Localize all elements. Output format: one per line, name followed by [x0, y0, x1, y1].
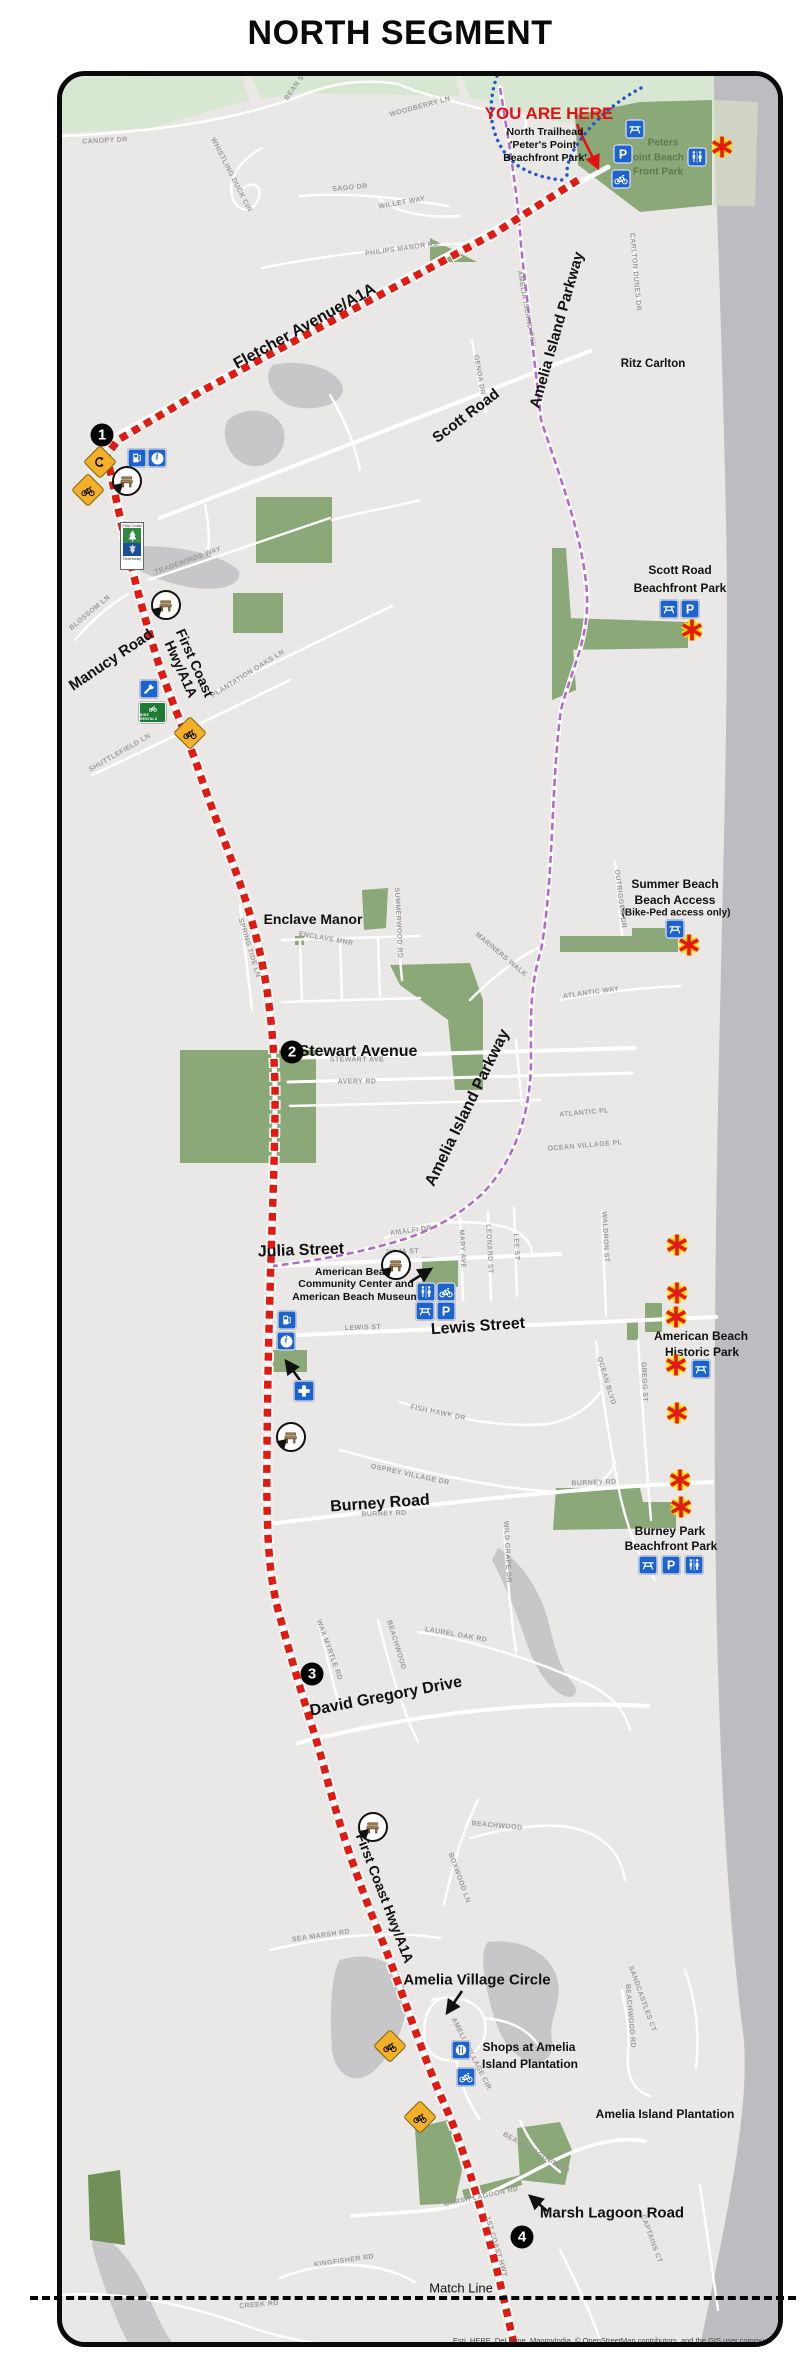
place-peters-point: Front Park — [633, 167, 683, 178]
place-shops: Shops at Amelia — [483, 2040, 576, 2054]
picnic-icon — [626, 120, 645, 139]
street-label: LEE ST — [512, 1233, 520, 1260]
place-scott-park: Scott Road — [648, 563, 711, 577]
info-icon: i — [148, 449, 167, 468]
map-attribution: Esri, HERE, DeLorme, MapmyIndia, © OpenS… — [453, 2336, 776, 2345]
picnic-icon — [639, 1556, 658, 1575]
info-letter: i — [280, 1335, 292, 1347]
info-icon: i — [277, 1332, 296, 1351]
beach-access-icon — [665, 1281, 689, 1305]
parking-icon: P — [437, 1302, 456, 1321]
waypoint-marker-1: 1 — [91, 424, 114, 447]
place-ritz-carlton: Ritz Carlton — [621, 358, 686, 370]
gas-icon — [278, 1311, 297, 1330]
picnic-icon — [660, 600, 679, 619]
beach-access-icon — [680, 618, 704, 642]
parking-letter: P — [667, 1558, 675, 1572]
first-aid-icon — [294, 1381, 315, 1402]
beach-access-icon — [710, 135, 734, 159]
street-label: LEWIS ST — [345, 1324, 381, 1332]
place-peters-point: Point Beach — [626, 153, 684, 164]
bike-rentals-sign-icon: BIKE RENTALS — [139, 702, 166, 723]
road-label-marsh-lagoon: Marsh Lagoon Road — [540, 2205, 684, 2222]
greenway-sign-bottom-text: Greenway — [123, 556, 141, 561]
restroom-icon — [688, 148, 707, 167]
place-scott-park: Beachfront Park — [634, 581, 727, 595]
bike-icon — [612, 170, 631, 189]
picnic-icon — [666, 920, 685, 939]
map-base — [57, 71, 783, 2347]
road-label-julia: Julia Street — [258, 1241, 345, 1262]
place-am-beach-hp: American Beach — [654, 1329, 748, 1343]
place-summer-beach: Beach Access — [635, 893, 716, 907]
restroom-icon — [417, 1283, 436, 1302]
beach-access-icon — [664, 1353, 688, 1377]
place-shops: Island Plantation — [482, 2057, 578, 2071]
park-area-dark — [88, 2170, 125, 2245]
place-amelia-island-plantation: Amelia Island Plantation — [596, 2107, 735, 2121]
place-burney-park: Beachfront Park — [625, 1539, 718, 1553]
greenway-sign-icon: First Coast Greenway — [120, 522, 144, 570]
beach-access-icon — [669, 1495, 693, 1519]
beach-access-icon — [668, 1468, 692, 1492]
parking-icon: P — [662, 1556, 681, 1575]
waypoint-marker-4: 4 — [511, 2226, 534, 2249]
restroom-icon — [685, 1556, 704, 1575]
place-summer-beach: Summer Beach — [631, 877, 718, 891]
you-are-here-line: Beachfront Park' — [503, 152, 587, 164]
bench-icon — [381, 1250, 411, 1280]
info-letter: i — [151, 452, 163, 464]
page-title: NORTH SEGMENT — [0, 14, 800, 53]
parking-letter: P — [686, 602, 694, 616]
parking-letter: P — [619, 147, 627, 161]
gas-icon — [128, 449, 147, 468]
bike-repair-icon — [140, 680, 159, 699]
parking-letter: P — [442, 1304, 450, 1318]
beach-access-icon — [665, 1233, 689, 1257]
match-line-label: Match Line — [429, 2281, 493, 2296]
bike-rentals-text: BIKE RENTALS — [140, 713, 165, 721]
bike-icon — [457, 2068, 476, 2087]
picnic-icon — [416, 1302, 435, 1321]
place-enclave-manor: Enclave Manor — [264, 911, 363, 927]
waypoint-marker-3: 3 — [301, 1663, 324, 1686]
parking-icon: P — [614, 145, 633, 164]
match-line — [30, 2296, 796, 2300]
beach-access-icon — [664, 1305, 688, 1329]
you-are-here-line: 'Peter's Point — [510, 139, 576, 151]
street-label: AVERY RD — [338, 1079, 376, 1086]
picnic-icon — [692, 1360, 711, 1379]
bench-icon — [358, 1812, 388, 1842]
waypoint-marker-2: 2 — [281, 1041, 304, 1064]
street-label: STEWART AVE — [330, 1057, 384, 1064]
road-label-amelia-village: Amelia Village Circle — [403, 1972, 550, 1989]
place-summer-beach: (Bike-Ped access only) — [622, 908, 731, 919]
map-graphics — [57, 71, 783, 2347]
bench-icon — [276, 1422, 306, 1452]
you-are-here-label: YOU ARE HERE — [485, 104, 614, 124]
place-burney-park: Burney Park — [635, 1524, 706, 1538]
tree-icon — [123, 528, 141, 543]
map-container: YOU ARE HERE North Trailhead 'Peter's Po… — [57, 71, 783, 2347]
place-am-beach-cc: American Beach Museum — [292, 1291, 420, 1303]
tree-reflection-icon — [123, 543, 141, 556]
you-are-here-line: North Trailhead — [506, 126, 583, 138]
beach-access-icon — [665, 1401, 689, 1425]
bike-icon — [437, 1283, 456, 1302]
place-peters-point: Peters — [648, 138, 679, 149]
bench-icon — [112, 466, 142, 496]
restaurant-icon — [452, 2041, 471, 2060]
bench-icon — [151, 590, 181, 620]
parking-icon: P — [681, 600, 700, 619]
